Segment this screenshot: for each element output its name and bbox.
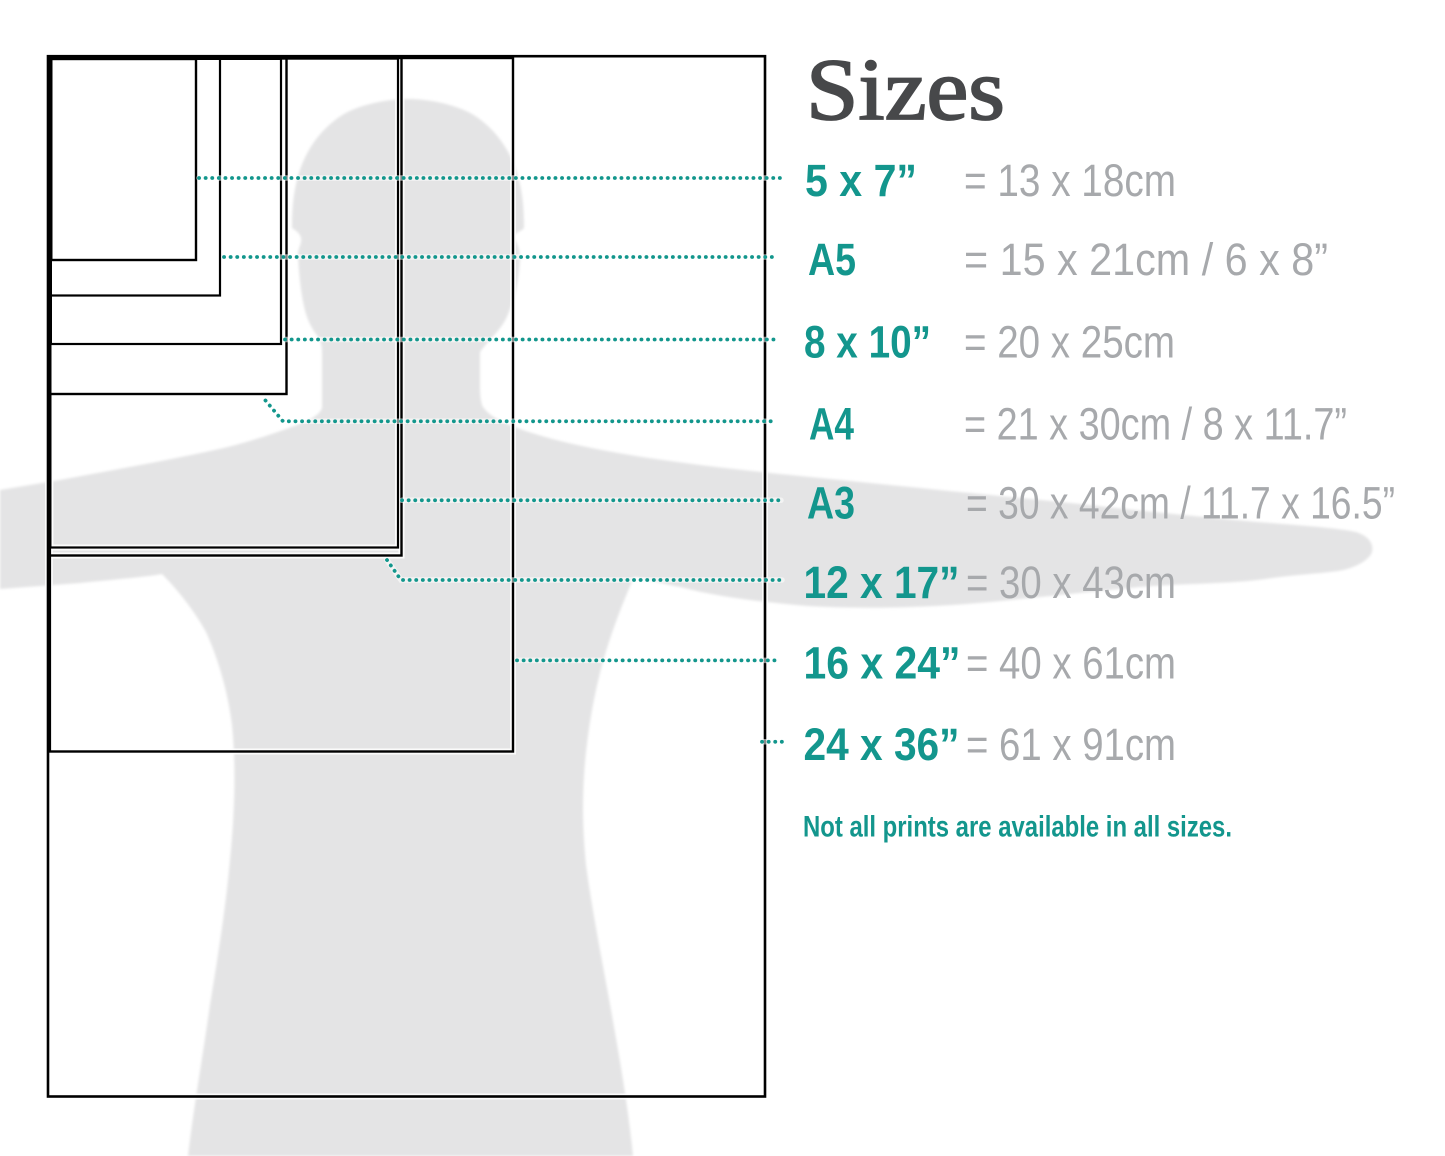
svg-text:8 x 10”: 8 x 10” xyxy=(804,317,931,368)
svg-text:= 21 x 30cm / 8 x 11.7”: = 21 x 30cm / 8 x 11.7” xyxy=(964,398,1347,449)
svg-text:16 x 24”: 16 x 24” xyxy=(804,637,961,688)
svg-text:Sizes: Sizes xyxy=(806,42,1005,139)
svg-text:= 61 x 91cm: = 61 x 91cm xyxy=(966,719,1176,770)
svg-text:= 30 x 43cm: = 30 x 43cm xyxy=(966,557,1176,608)
svg-text:5 x 7”: 5 x 7” xyxy=(805,155,917,206)
svg-text:= 30 x 42cm / 11.7 x 16.5”: = 30 x 42cm / 11.7 x 16.5” xyxy=(966,477,1395,528)
svg-text:= 13 x 18cm: = 13 x 18cm xyxy=(964,155,1176,206)
svg-text:= 15 x 21cm / 6 x 8”: = 15 x 21cm / 6 x 8” xyxy=(964,234,1328,285)
svg-text:= 20 x 25cm: = 20 x 25cm xyxy=(964,317,1175,368)
svg-text:24 x 36”: 24 x 36” xyxy=(804,719,960,770)
svg-text:A4: A4 xyxy=(809,398,854,449)
svg-text:A3: A3 xyxy=(807,477,855,528)
svg-text:12 x 17”: 12 x 17” xyxy=(804,557,960,608)
svg-text:= 40 x 61cm: = 40 x 61cm xyxy=(966,637,1176,688)
svg-text:Not all prints are available i: Not all prints are available in all size… xyxy=(803,811,1232,844)
svg-text:A5: A5 xyxy=(808,234,856,285)
